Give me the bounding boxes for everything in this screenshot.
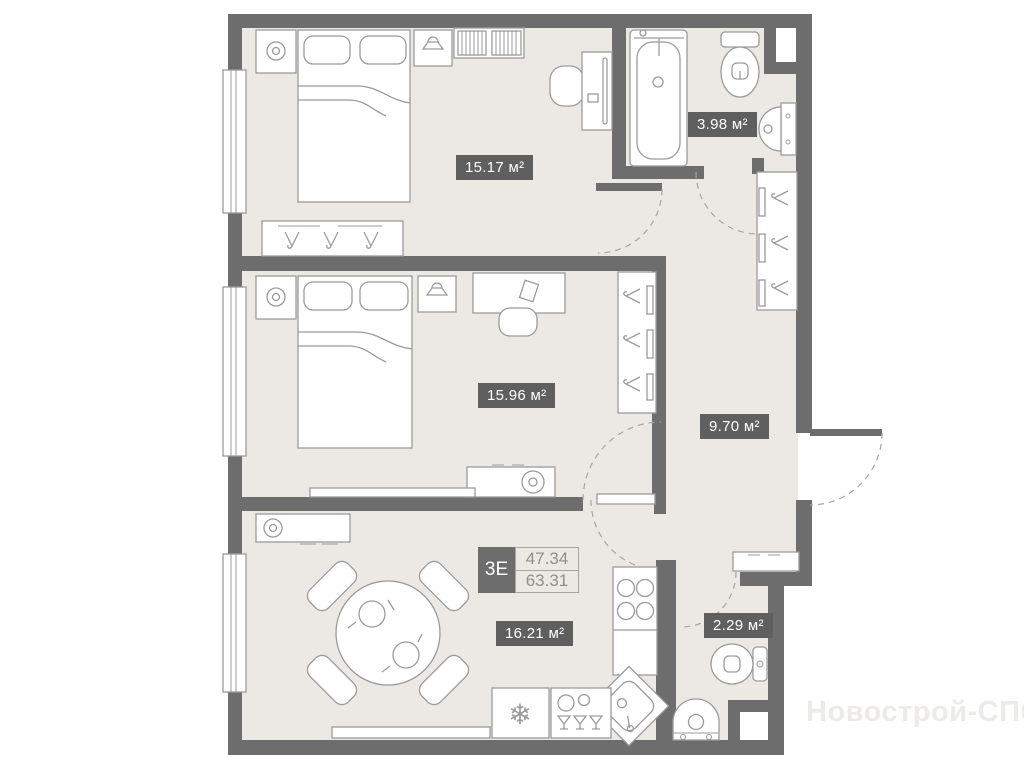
floor-plan: ❄ 15.17 м² 3.98 м² 15.96 м² 9.70 м² 16.2… <box>0 0 1024 768</box>
window-bedroom1 <box>223 70 246 213</box>
window-living <box>223 554 246 692</box>
nightstand-lamp-2 <box>256 276 296 319</box>
door-leaf-entrance <box>810 429 882 436</box>
wardrobe-bedroom2 <box>618 272 656 413</box>
apartment-spec: 3Е 47.34 63.31 <box>478 547 579 593</box>
toilet-wc <box>711 644 767 684</box>
door-leaf-bedroom1 <box>596 183 662 191</box>
apartment-areas: 47.34 63.31 <box>515 547 579 593</box>
area-badge-bedroom-1: 15.17 м² <box>456 155 533 180</box>
area-badge-wc: 2.29 м² <box>704 613 773 638</box>
toilet-bathroom <box>721 32 759 97</box>
dresser <box>454 28 524 58</box>
iron-board-icon-2 <box>418 276 456 312</box>
wall-bedroom2-door-jamb <box>654 492 666 514</box>
window-bedroom2 <box>223 287 246 456</box>
washing-machine <box>673 699 719 740</box>
snowflake-icon: ❄ <box>508 698 531 731</box>
glass-cabinet <box>551 688 611 738</box>
area-badge-hallway: 9.70 м² <box>700 414 769 439</box>
wall-right-upper <box>796 14 812 433</box>
wardrobe-bedroom1 <box>262 221 403 256</box>
wall-wc-right <box>768 586 784 755</box>
wall-bottom <box>228 740 784 755</box>
wall-step-cap <box>740 572 812 586</box>
wall-shaft-bottom <box>764 62 812 74</box>
double-bed <box>298 30 410 202</box>
low-shelf-bedroom2 <box>310 488 475 497</box>
bathtub <box>630 30 687 166</box>
wall-top <box>228 14 812 28</box>
low-shelf-living <box>332 727 490 738</box>
area-badge-bedroom-2: 15.96 м² <box>478 383 555 408</box>
wall-bedroom1-bathroom <box>612 14 626 168</box>
apartment-type-label: 3Е <box>478 547 515 593</box>
living-area-value: 47.34 <box>516 548 578 570</box>
windows <box>223 70 246 692</box>
wall-wc-niche-left <box>728 700 740 755</box>
wall-bedroom2-bottom <box>228 497 583 511</box>
door-leaf-bedroom2 <box>597 494 655 504</box>
wall-bedroom1-bottom <box>228 256 653 271</box>
stove <box>613 567 657 675</box>
wc-niche <box>740 712 768 740</box>
watermark: Новострой-СПб <box>806 696 1024 729</box>
tv-console-living <box>256 514 350 544</box>
wall-bathroom-bottom <box>612 166 704 179</box>
area-badge-bathroom: 3.98 м² <box>688 112 757 137</box>
fridge: ❄ <box>492 688 549 738</box>
nightstand-lamp <box>256 30 296 73</box>
wardrobe-hallway <box>757 172 797 310</box>
hallway-shelf <box>733 552 799 571</box>
double-bed-2 <box>298 276 412 448</box>
total-area-value: 63.31 <box>516 570 578 593</box>
iron-board-icon <box>414 0 452 66</box>
tv-console-bedroom2 <box>467 465 555 497</box>
door-arc-entrance <box>810 433 882 505</box>
area-badge-kitchen-living: 16.21 м² <box>496 621 573 646</box>
shaft-niche <box>776 28 796 62</box>
